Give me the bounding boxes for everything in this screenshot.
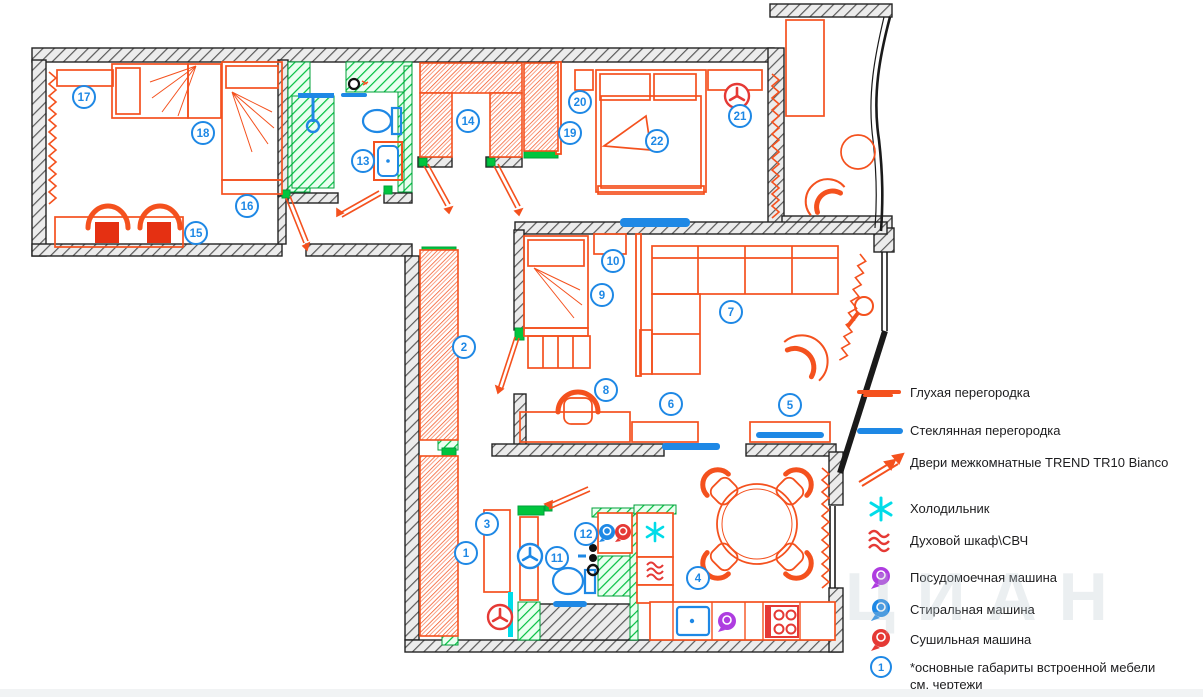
svg-text:12: 12 — [580, 529, 593, 541]
green-zones — [282, 62, 676, 645]
svg-text:18: 18 — [197, 128, 210, 140]
room-marker-16: 16 — [236, 195, 258, 217]
solid-partition-icon — [852, 378, 910, 408]
room-marker-12: 12 — [575, 523, 597, 545]
fan-blue-icon — [518, 544, 542, 568]
legend-item-oven: Духовой шкаф\СВЧ — [852, 526, 1028, 556]
svg-text:13: 13 — [357, 156, 370, 168]
door-icon — [852, 448, 910, 488]
legend-item-washer: Стиральная машина — [852, 595, 1035, 625]
legend-item-door: Двери межкомнатные TREND TR10 Bianco — [852, 448, 1168, 488]
svg-text:15: 15 — [190, 228, 203, 240]
svg-text:9: 9 — [599, 290, 605, 302]
room-marker-3: 3 — [476, 513, 498, 535]
room-marker-17: 17 — [73, 86, 95, 108]
legend-item-glass-partition: Стеклянная перегородка — [852, 416, 1061, 446]
room-marker-20: 20 — [569, 91, 591, 113]
dining-set — [697, 464, 818, 585]
room-marker-10: 10 — [602, 250, 624, 272]
legend: Глухая перегородкаСтеклянная перегородка… — [852, 0, 1202, 697]
dryer-icon — [852, 625, 910, 655]
room-marker-5: 5 — [779, 394, 801, 416]
room-marker-19: 19 — [559, 122, 581, 144]
room-marker-22: 22 — [646, 130, 668, 152]
glass-partition-icon — [852, 416, 910, 446]
svg-text:6: 6 — [668, 399, 674, 411]
svg-text:3: 3 — [484, 519, 490, 531]
room-marker-4: 4 — [687, 567, 709, 589]
legend-label: Глухая перегородка — [910, 385, 1030, 402]
note-icon: 1 — [852, 653, 910, 683]
cabinet-tv — [756, 432, 824, 438]
svg-text:16: 16 — [241, 201, 254, 213]
legend-label: Стеклянная перегородка — [910, 423, 1061, 440]
room-marker-18: 18 — [192, 122, 214, 144]
svg-text:17: 17 — [78, 92, 91, 104]
vent-red-icon — [488, 605, 512, 629]
room-marker-1: 1 — [455, 542, 477, 564]
legend-item-fridge: Холодильник — [852, 494, 989, 524]
svg-text:14: 14 — [462, 116, 475, 128]
room-marker-11: 11 — [546, 547, 568, 569]
fridge-icon — [852, 494, 910, 524]
svg-text:10: 10 — [607, 256, 620, 268]
svg-text:4: 4 — [695, 573, 702, 585]
floorplan-page: 12345678910111213141516171819202122 Глух… — [0, 0, 1203, 697]
legend-label: Холодильник — [910, 501, 989, 518]
oven-icon — [852, 526, 910, 556]
svg-text:21: 21 — [734, 111, 747, 123]
legend-item-dishwasher: Посудомоечная машина — [852, 563, 1057, 593]
living-glass-partition — [662, 443, 720, 450]
legend-label: Стиральная машина — [910, 602, 1035, 619]
room-marker-15: 15 — [185, 222, 207, 244]
room-marker-7: 7 — [720, 301, 742, 323]
legend-label: Двери межкомнатные TREND TR10 Bianco — [910, 455, 1168, 472]
dishwasher-icon — [852, 563, 910, 593]
room-marker-8: 8 — [595, 379, 617, 401]
svg-text:22: 22 — [651, 136, 664, 148]
legend-label: Посудомоечная машина — [910, 570, 1057, 587]
svg-text:11: 11 — [551, 553, 564, 565]
room-marker-2: 2 — [453, 336, 475, 358]
room-marker-21: 21 — [729, 105, 751, 127]
svg-text:7: 7 — [728, 307, 734, 319]
room-marker-9: 9 — [591, 284, 613, 306]
room-marker-13: 13 — [352, 150, 374, 172]
svg-text:8: 8 — [603, 385, 610, 397]
legend-item-note: 1*основные габариты встроенной мебели см… — [852, 653, 1172, 694]
bottom-strip — [0, 689, 1203, 697]
svg-text:1: 1 — [878, 662, 884, 674]
room-marker-14: 14 — [457, 110, 479, 132]
legend-item-dryer: Сушильная машина — [852, 625, 1031, 655]
symbols-layer — [488, 84, 873, 629]
legend-label: Сушильная машина — [910, 632, 1031, 649]
legend-label: Духовой шкаф\СВЧ — [910, 533, 1028, 550]
svg-text:20: 20 — [574, 97, 587, 109]
svg-text:19: 19 — [564, 128, 577, 140]
washer-icon — [852, 595, 910, 625]
bedroom-tv — [620, 218, 690, 227]
room-marker-6: 6 — [660, 393, 682, 415]
legend-item-solid-partition: Глухая перегородка — [852, 378, 1030, 408]
svg-text:1: 1 — [463, 548, 470, 560]
svg-text:5: 5 — [787, 400, 794, 412]
svg-text:2: 2 — [461, 342, 467, 354]
